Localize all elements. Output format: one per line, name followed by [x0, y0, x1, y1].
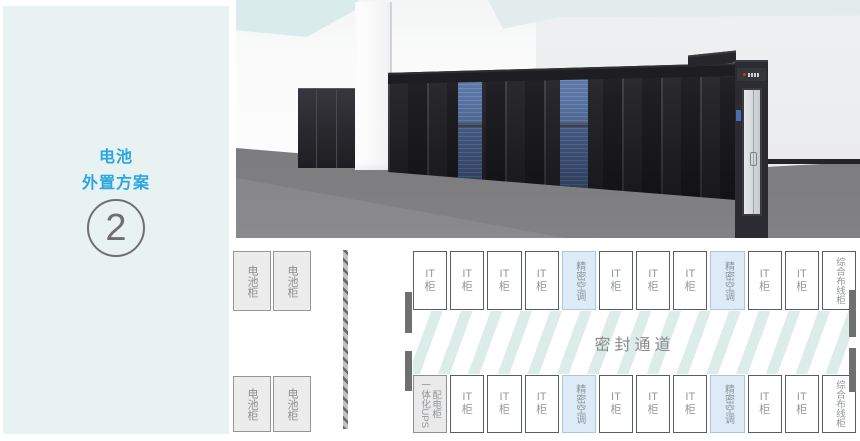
cabinet-it: IT柜 — [636, 251, 670, 310]
cabinet-label: 电池柜 — [286, 388, 298, 421]
logo-text-marks — [748, 73, 760, 77]
cabinet-label: IT柜 — [680, 391, 700, 417]
logo-red-dot — [743, 73, 746, 76]
cabinet-precision-ac: 精密空调 — [710, 251, 744, 310]
cabinet-label: IT柜 — [643, 391, 663, 417]
sealed-aisle: 密封通道 — [413, 311, 856, 374]
cabinet-row-bottom: 一体化UPS配电柜 IT柜 IT柜 IT柜 精密空调 IT柜 IT柜 IT柜 精… — [413, 375, 856, 433]
ceiling-left — [236, 0, 358, 42]
cabinet-battery: 电池柜 — [273, 251, 311, 311]
cabinet-label: IT柜 — [532, 391, 552, 417]
cabinet-it: IT柜 — [525, 375, 559, 433]
render-3d — [236, 0, 860, 238]
cabinet-label: 综合布线柜 — [833, 380, 845, 428]
plan-title-line1: 电池 — [3, 145, 229, 171]
cabinet-it: IT柜 — [599, 251, 633, 310]
status-panel-blue — [736, 110, 741, 121]
cabinet-label: 电池柜 — [286, 265, 298, 298]
cabinet-label: IT柜 — [755, 268, 775, 294]
battery-cabinet-3d — [298, 89, 316, 168]
cabinet-label: 电池柜 — [246, 388, 258, 421]
cabinet-it: IT柜 — [413, 251, 447, 310]
door-handle — [750, 152, 757, 166]
cabinet-label: 精密空调 — [721, 384, 733, 424]
cabinet-it: IT柜 — [450, 375, 484, 433]
cabinet-it: IT柜 — [673, 251, 707, 310]
cabinet-label: 精密空调 — [721, 261, 733, 301]
aisle-end-cap-3d — [735, 60, 768, 238]
plan-title: 电池 外置方案 — [3, 145, 229, 197]
cabinet-label: IT柜 — [494, 268, 514, 294]
cabinet-label: IT柜 — [494, 391, 514, 417]
cabinet-label: IT柜 — [755, 391, 775, 417]
aisle-door-left-top — [405, 292, 412, 333]
aisle-end-door — [742, 88, 762, 216]
cabinet-label: 精密空调 — [573, 384, 585, 424]
cabinet-precision-ac: 精密空调 — [562, 251, 596, 310]
rack-row-3d — [388, 52, 770, 208]
cabinet-label: IT柜 — [792, 268, 812, 294]
cabinet-label: 综合布线柜 — [833, 257, 845, 305]
cabinet-label: 电池柜 — [246, 265, 258, 298]
baseboard — [764, 159, 860, 164]
cabinet-label: IT柜 — [643, 268, 663, 294]
cabinet-label: IT柜 — [792, 391, 812, 417]
cabinet-it: IT柜 — [785, 251, 819, 310]
cabinet-it: IT柜 — [487, 251, 521, 310]
cabinet-label: IT柜 — [606, 268, 626, 294]
cabinet-label: IT柜 — [680, 268, 700, 294]
cabinet-it: IT柜 — [673, 375, 707, 433]
aisle-door-right-bottom — [849, 348, 856, 392]
cabinet-ups-pdu: 一体化UPS配电柜 — [413, 375, 447, 433]
cabinet-row-top: IT柜 IT柜 IT柜 IT柜 精密空调 IT柜 IT柜 IT柜 精密空调 IT… — [413, 251, 856, 310]
cabinet-battery: 电池柜 — [233, 376, 271, 432]
cabinet-label: IT柜 — [457, 268, 477, 294]
brand-logo-strip — [737, 68, 766, 81]
cabinet-label: IT柜 — [457, 391, 477, 417]
cabinet-label: 精密空调 — [573, 261, 585, 301]
aisle-door-left-bottom — [405, 351, 412, 391]
cabinet-battery: 电池柜 — [233, 251, 271, 311]
cabinet-it: IT柜 — [748, 375, 782, 433]
battery-cabinet-3d — [317, 89, 335, 168]
cabinet-it: IT柜 — [599, 375, 633, 433]
cabinet-precision-ac: 精密空调 — [710, 375, 744, 433]
cabinet-battery: 电池柜 — [273, 376, 311, 432]
cabinet-label: IT柜 — [420, 268, 440, 294]
cabinet-it: IT柜 — [525, 251, 559, 310]
cabinet-label: IT柜 — [606, 391, 626, 417]
aisle-label: 密封通道 — [594, 331, 674, 355]
partition-wall — [355, 2, 392, 170]
cabinet-it: IT柜 — [636, 375, 670, 433]
cabinet-label: IT柜 — [532, 268, 552, 294]
plan-title-line2: 外置方案 — [3, 171, 229, 197]
cabinet-it: IT柜 — [487, 375, 521, 433]
battery-group-top: 电池柜 电池柜 — [233, 251, 311, 311]
cabinet-precision-ac: 精密空调 — [562, 375, 596, 433]
cabinet-it: IT柜 — [450, 251, 484, 310]
cabinet-it: IT柜 — [785, 375, 819, 433]
cabinet-it: IT柜 — [748, 251, 782, 310]
floor-plan: 电池柜 电池柜 电池柜 电池柜 IT柜 IT柜 IT柜 IT柜 精密空调 IT柜… — [0, 238, 860, 441]
cabinet-label: 一体化UPS配电柜 — [419, 378, 441, 430]
slide: 电池 外置方案 2 — [0, 0, 860, 441]
aisle-door-right-top — [849, 290, 856, 337]
battery-group-bottom: 电池柜 电池柜 — [233, 376, 311, 432]
battery-cabinet-3d — [337, 89, 355, 168]
wall-hatch — [343, 250, 348, 429]
